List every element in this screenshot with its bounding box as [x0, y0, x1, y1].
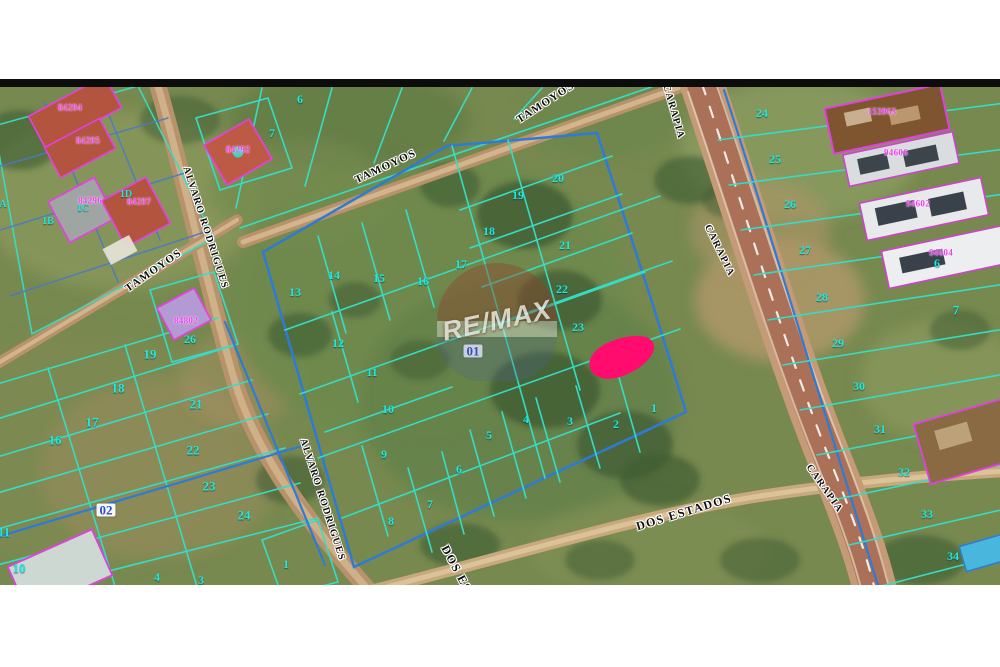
street-name: CARAPIA — [660, 87, 685, 141]
lot-number: 21 — [190, 398, 203, 411]
aerial-map-image[interactable]: 6713141516171819202122231211109876543212… — [0, 87, 1000, 585]
unit-label: 1B — [42, 217, 54, 227]
lot-number: 6 — [456, 463, 462, 475]
map-labels-layer: 6713141516171819202122231211109876543212… — [0, 87, 1000, 585]
lot-number: 28 — [816, 291, 828, 303]
lot-number: 16 — [417, 275, 429, 287]
lot-number: 33 — [921, 508, 933, 520]
lot-number: 7 — [427, 498, 433, 510]
building-label: 84297 — [127, 198, 151, 207]
street-name: TAMOYOS — [124, 247, 185, 294]
lot-number: 24 — [238, 509, 251, 522]
lot-number: 23 — [572, 321, 584, 333]
block-label: 01 — [464, 345, 483, 358]
lot-number: 11 — [0, 526, 10, 539]
lot-number: 6 — [934, 257, 940, 269]
building-label: 84294 — [58, 104, 82, 113]
lot-number: 14 — [328, 269, 340, 281]
lot-number: 9 — [381, 448, 387, 460]
street-name: ALVARO RODRIGUES — [297, 437, 346, 562]
lot-number: 4 — [523, 413, 529, 425]
lot-number: 24 — [756, 107, 768, 119]
lot-number: 13 — [289, 286, 301, 298]
lot-number: 3 — [198, 574, 204, 585]
street-name: TAMOYOS — [354, 148, 419, 186]
lot-number: 26 — [784, 198, 796, 210]
lot-number: 21 — [559, 239, 571, 251]
street-name: DOS ESTADOS — [635, 492, 733, 533]
lot-number: 17 — [86, 416, 99, 429]
building-label: 84295 — [76, 137, 100, 146]
lot-number: 4 — [154, 571, 160, 583]
lot-number: 16 — [49, 434, 62, 447]
street-name: CARAPIA — [702, 223, 736, 278]
lot-number: 19 — [512, 189, 524, 201]
lot-number: 27 — [799, 244, 811, 256]
block-label: 02 — [97, 504, 116, 517]
lot-number: 25 — [769, 153, 781, 165]
building-label: 84296 — [78, 197, 102, 206]
lot-number: 10 — [382, 403, 394, 415]
lot-number: 5 — [486, 429, 492, 441]
lot-number: 20 — [552, 172, 564, 184]
building-label: 153963 — [868, 108, 897, 117]
lot-number: 17 — [455, 258, 467, 270]
lot-number: 7 — [269, 127, 275, 139]
lot-number: 11 — [366, 366, 377, 378]
lot-number: 22 — [556, 283, 568, 295]
lot-number: 19 — [144, 348, 157, 361]
street-name: CARAPIA — [804, 463, 845, 515]
unit-label: A — [0, 200, 7, 210]
lot-number: 29 — [832, 337, 844, 349]
building-label: 94602 — [906, 200, 930, 209]
building-label: 94604 — [929, 249, 953, 258]
lot-number: 8 — [388, 515, 394, 527]
lot-number: 3 — [567, 415, 573, 427]
lot-number: 23 — [203, 480, 216, 493]
building-label: 84292 — [226, 146, 250, 155]
lot-number: 30 — [853, 380, 865, 392]
lot-number: 15 — [373, 272, 385, 284]
building-label: 94606 — [884, 149, 908, 158]
street-name: TAMOYOS — [515, 87, 577, 126]
lot-number: 2 — [613, 418, 619, 430]
lot-number: 18 — [112, 382, 125, 395]
lot-number: 34 — [947, 550, 959, 562]
lot-number: 6 — [297, 93, 303, 105]
lot-number: 26 — [184, 333, 196, 345]
lot-number: 1 — [283, 558, 289, 570]
building-label: 84802 — [174, 317, 198, 326]
lot-number: 7 — [953, 304, 960, 317]
lot-number: 1 — [651, 402, 657, 414]
lot-number: 10 — [13, 562, 26, 575]
lot-number: 31 — [874, 423, 886, 435]
unit-label: 1C — [77, 204, 89, 214]
lot-number: 12 — [332, 337, 344, 349]
lot-number: 18 — [483, 225, 495, 237]
lot-number: 32 — [898, 466, 910, 478]
street-name: DOS ESTADOS — [439, 543, 496, 585]
lot-number: 22 — [187, 444, 200, 457]
top-divider-bar — [0, 79, 1000, 87]
screenshot-root: 6713141516171819202122231211109876543212… — [0, 0, 1000, 667]
street-name: ALVARO RODRIGUES — [180, 165, 229, 290]
